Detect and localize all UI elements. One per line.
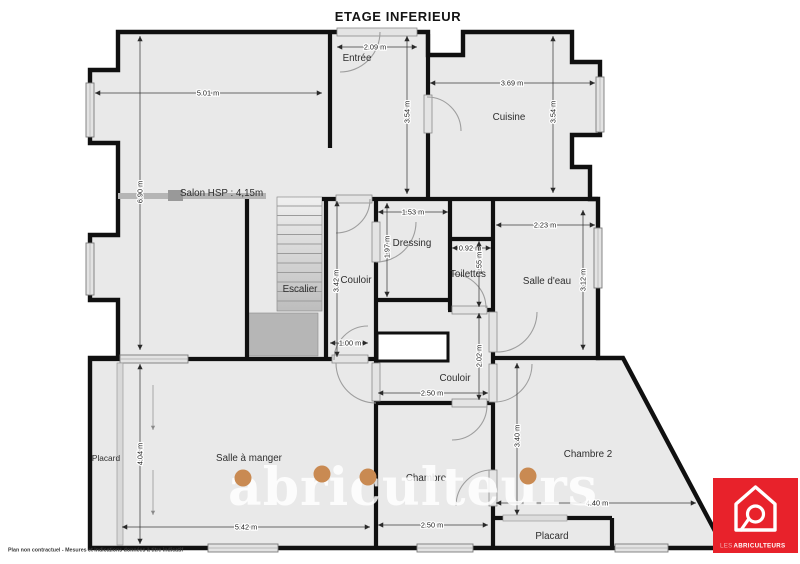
room-label-salle-eau: Salle d'eau [523,276,571,287]
door-toilettes [452,306,487,314]
front-door [337,28,417,36]
watermark-dot [314,466,331,483]
door-couloir-bas [332,355,368,363]
room-label-escalier: Escalier [283,284,319,295]
dim-salle-a-manger-width: 5.42 m [235,523,257,532]
door-entree-couloir [336,195,372,203]
watermark-dot [235,470,252,487]
plan-title: ETAGE INFERIEUR [335,9,462,24]
brand-logo: LES ABRICULTEURS [713,478,798,553]
dim-cuisine-height: 3.54 m [549,101,558,123]
room-label-toilettes: Toilettes [450,269,486,280]
door-dressing [372,222,380,262]
watermark-dot [360,469,377,486]
dim-chambre2-height: 3.40 m [513,425,522,447]
watermark-text: abriculteurs [228,457,598,518]
dim-salle-eau-width: 2.23 m [534,221,556,230]
dim-entree-height: 3.54 m [403,101,412,123]
room-label-cuisine: Cuisine [493,112,526,123]
stair-void [377,333,448,361]
dim-toilettes-width: 0.92 m [459,244,481,253]
dim-cuisine-width: 3.69 m [501,79,523,88]
room-label-dressing: Dressing [393,238,432,249]
floor-plan: 5.01 m 6.90 m 2.09 m 3.54 m 3.69 m 3.54 … [0,0,800,564]
brand-name: ABRICULTEURS [734,543,786,550]
room-label-couloir-haut: Couloir [340,275,372,286]
door-chambre [452,399,487,407]
room-label-couloir-bas: Couloir [439,373,471,384]
dim-couloir-haut-height: 3.42 m [332,270,341,292]
disclaimer-text: Plan non contractuel - Mesures et indica… [8,548,183,554]
dim-couloir-bas-width: 2.50 m [421,389,443,398]
room-label-placard-chambre2: Placard [535,531,568,542]
door-salle-a-manger [372,363,380,401]
dim-porte-couloir: 1.00 m [339,339,361,348]
stair-landing [248,313,318,356]
dim-couloir-bas-height: 2.02 m [475,345,484,367]
dim-chambre-width: 2.50 m [421,521,443,530]
dim-salle-a-manger-height: 4.04 m [136,443,145,465]
dim-dressing-height: 1.97 m [383,236,392,258]
door-chambre2 [489,364,497,402]
room-label-placard-gauche: Placard [92,453,121,463]
door-salle-eau [489,312,497,352]
watermark: abriculteurs [228,457,598,518]
dim-salon-height: 6.90 m [136,181,145,203]
dim-salle-eau-height: 3.12 m [579,269,588,291]
door-cuisine [424,95,432,133]
dim-salon-width: 5.01 m [197,89,219,98]
dim-front-door: 2.09 m [364,43,386,52]
brand-prefix: LES [720,543,733,550]
room-label-salon: Salon HSP : 4,15m [180,188,263,199]
floor-plan-page: 5.01 m 6.90 m 2.09 m 3.54 m 3.69 m 3.54 … [0,0,800,564]
watermark-dot [520,468,537,485]
dim-dressing-width: 1.53 m [402,208,424,217]
room-label-entree: Entrée [343,53,372,64]
